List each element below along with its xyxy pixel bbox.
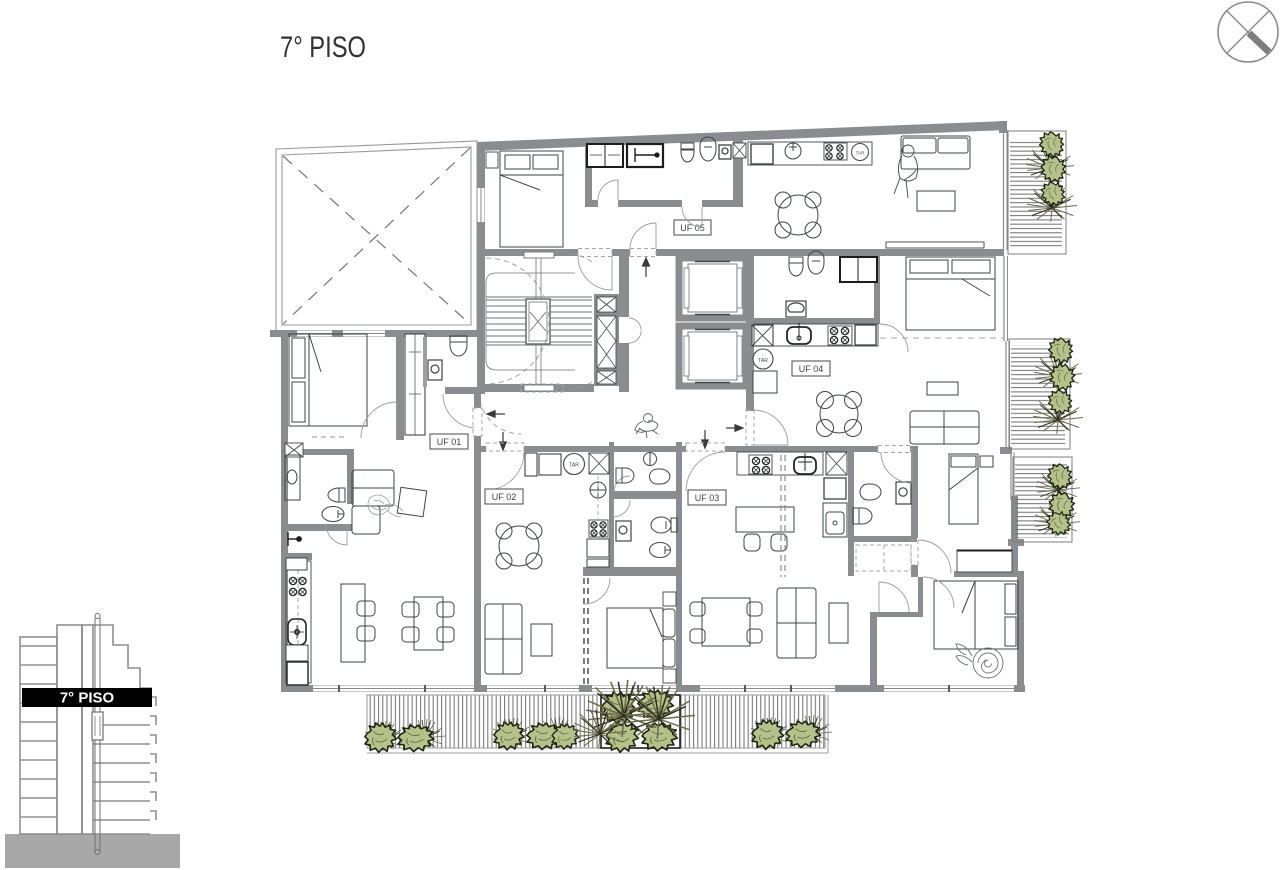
svg-text:UF 04: UF 04	[799, 364, 824, 374]
svg-text:TAR: TAR	[569, 463, 579, 469]
svg-text:UF 03: UF 03	[695, 493, 720, 503]
svg-text:TAR: TAR	[758, 358, 768, 364]
svg-text:UF 01: UF 01	[437, 437, 462, 447]
svg-text:7° PISO: 7° PISO	[60, 690, 115, 707]
svg-text:7° PISO: 7° PISO	[280, 31, 366, 64]
svg-text:UF 02: UF 02	[492, 492, 517, 502]
svg-text:TAR: TAR	[856, 151, 866, 156]
